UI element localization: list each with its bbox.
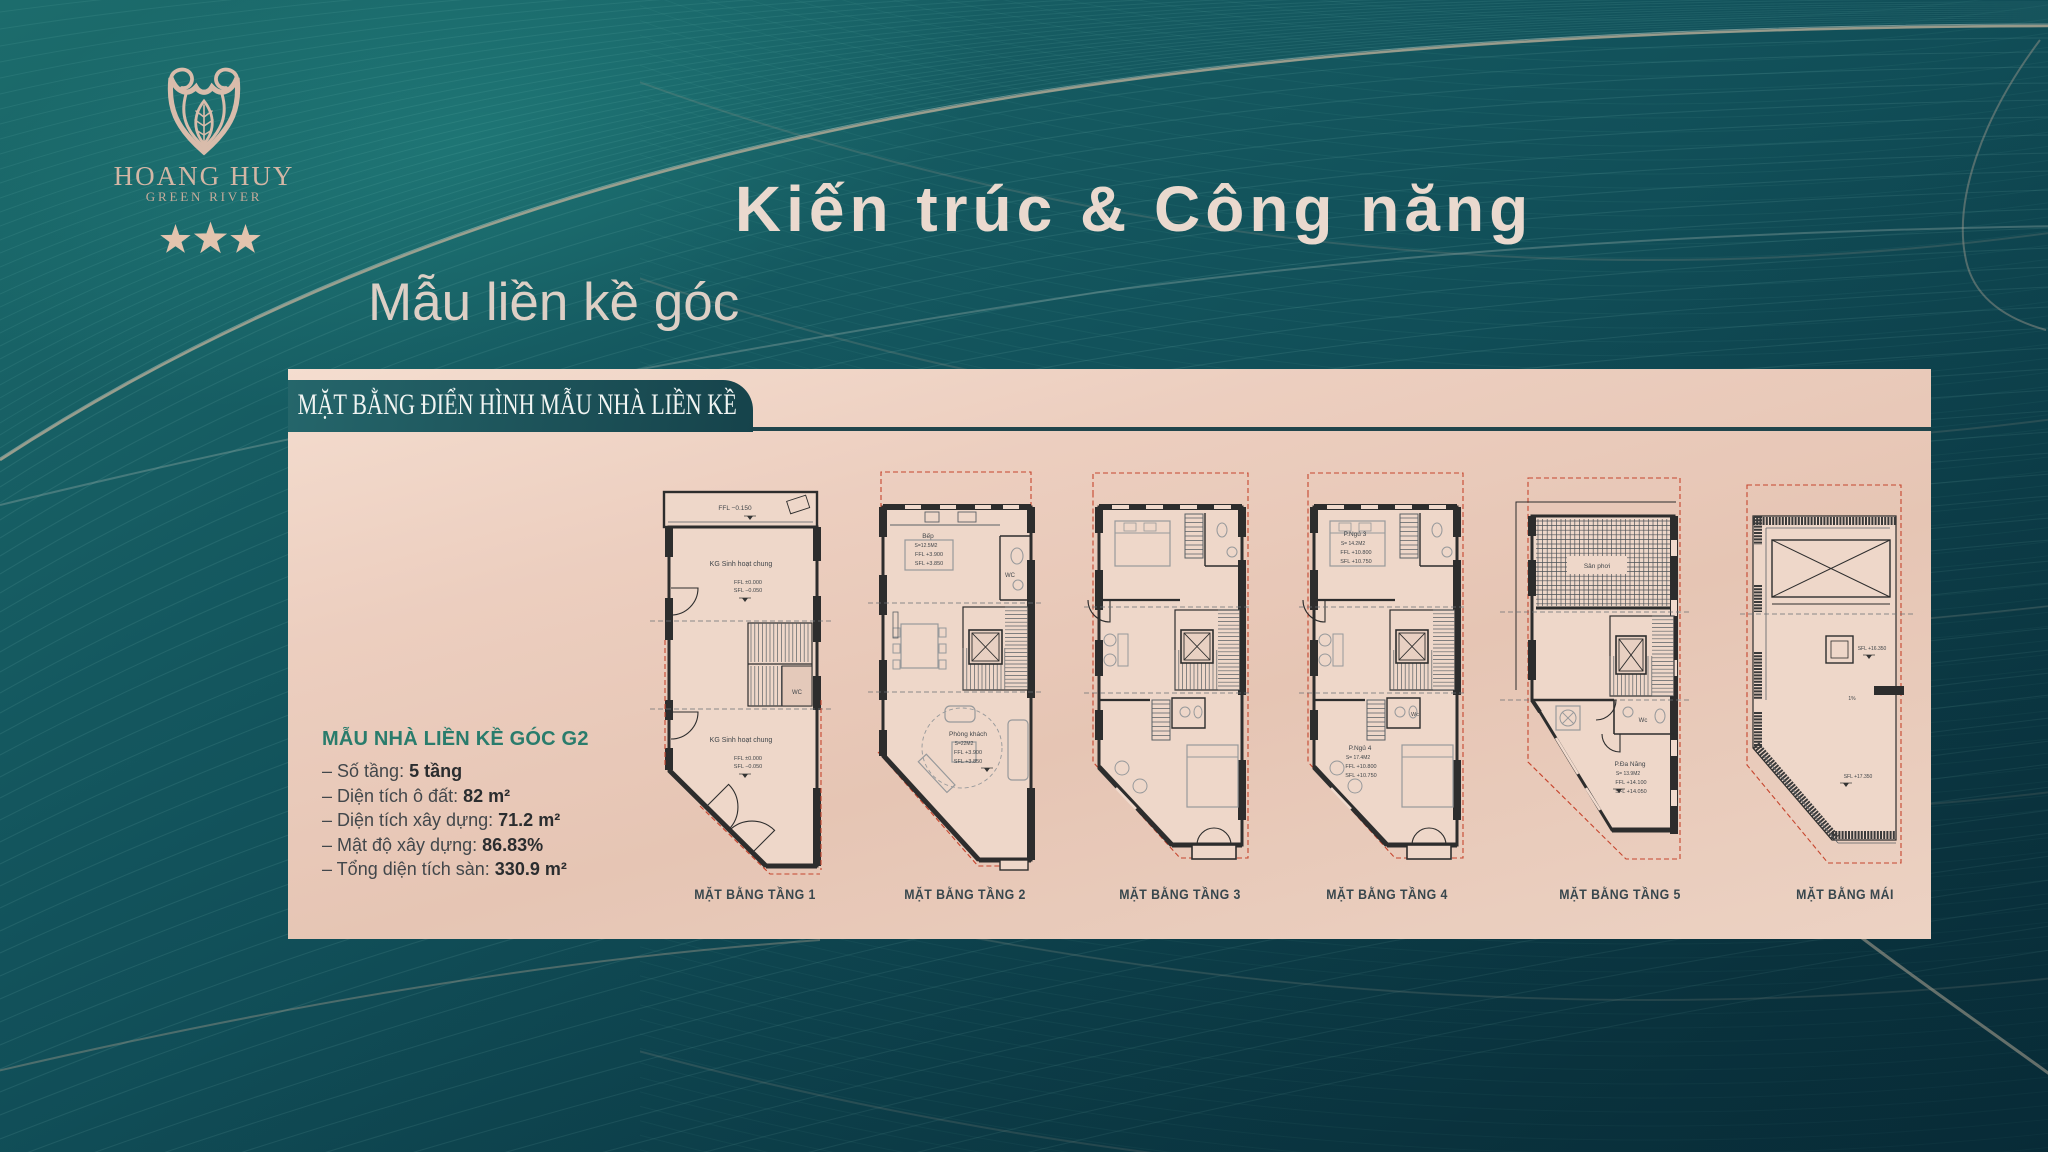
- svg-text:Wc: Wc: [1639, 718, 1648, 724]
- svg-text:SFL +3.850: SFL +3.850: [954, 759, 982, 765]
- svg-text:FFL +14.100: FFL +14.100: [1615, 780, 1646, 786]
- svg-text:SFL −0.050: SFL −0.050: [734, 764, 762, 770]
- svg-text:FFL +3.900: FFL +3.900: [954, 750, 982, 756]
- svg-text:S=12.5M2: S=12.5M2: [915, 543, 938, 549]
- svg-text:P.Ngủ 4: P.Ngủ 4: [1349, 744, 1372, 752]
- svg-text:Bếp: Bếp: [922, 531, 934, 540]
- svg-text:SFL +10.750: SFL +10.750: [1345, 773, 1376, 779]
- svg-text:FFL +3.900: FFL +3.900: [915, 552, 943, 558]
- svg-text:WC: WC: [792, 690, 803, 696]
- svg-text:KG Sinh hoạt chung: KG Sinh hoạt chung: [710, 561, 773, 568]
- svg-text:FFL −0.150: FFL −0.150: [718, 505, 752, 512]
- svg-text:S= 14.2M2: S= 14.2M2: [1341, 541, 1366, 547]
- svg-text:FFL ±0.000: FFL ±0.000: [734, 756, 762, 762]
- svg-text:Wc: Wc: [1411, 712, 1419, 718]
- svg-text:P.Ngủ 3: P.Ngủ 3: [1344, 530, 1367, 538]
- svg-text:Sân phơi: Sân phơi: [1584, 563, 1610, 570]
- svg-text:P.Đa Năng: P.Đa Năng: [1615, 761, 1646, 768]
- svg-text:SFL +3.850: SFL +3.850: [915, 561, 943, 567]
- svg-text:S= 13.9M2: S= 13.9M2: [1616, 771, 1641, 777]
- svg-text:KG Sinh hoạt chung: KG Sinh hoạt chung: [710, 737, 773, 744]
- svg-text:Phòng khách: Phòng khách: [949, 731, 987, 738]
- svg-text:FFL +10.800: FFL +10.800: [1345, 764, 1376, 770]
- svg-text:SFL +17.350: SFL +17.350: [1844, 774, 1873, 780]
- svg-text:S= 17.4M2: S= 17.4M2: [1346, 755, 1371, 761]
- svg-text:SFL +10.750: SFL +10.750: [1340, 559, 1371, 565]
- svg-text:SFL +16.350: SFL +16.350: [1858, 646, 1887, 652]
- svg-text:1%: 1%: [1848, 696, 1856, 702]
- svg-text:WC: WC: [1005, 573, 1016, 579]
- svg-text:FFL +10.800: FFL +10.800: [1340, 550, 1371, 556]
- svg-text:SFL −0.050: SFL −0.050: [734, 588, 762, 594]
- svg-text:FFL ±0.000: FFL ±0.000: [734, 580, 762, 586]
- svg-text:S=22M2: S=22M2: [955, 741, 974, 747]
